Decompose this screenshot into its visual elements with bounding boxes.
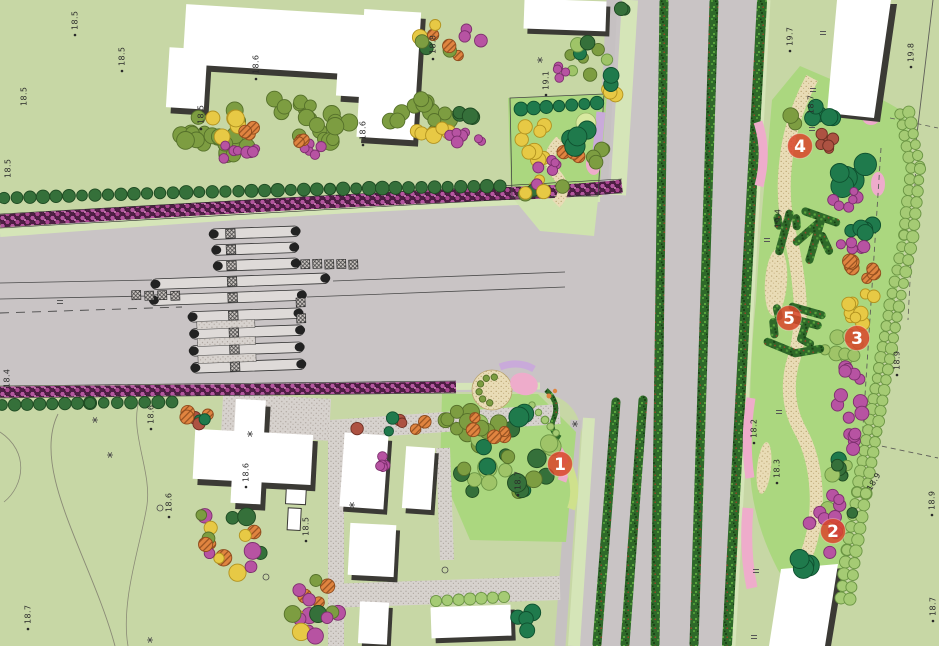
toll-booth	[226, 245, 236, 254]
tree	[846, 582, 857, 593]
elevation-value: 18.6	[165, 493, 174, 512]
tree	[518, 120, 532, 134]
toll-booth	[337, 259, 346, 268]
tree	[854, 153, 876, 175]
tree	[206, 111, 220, 125]
building-top-center	[523, 0, 610, 37]
tree	[834, 389, 847, 402]
tree	[284, 606, 301, 623]
tree	[453, 594, 464, 605]
tree	[553, 65, 561, 73]
tree	[590, 96, 603, 109]
tree	[166, 396, 178, 408]
tree	[141, 188, 152, 199]
tree	[34, 398, 46, 410]
tree	[830, 164, 849, 183]
tree	[220, 186, 231, 197]
tree	[873, 415, 885, 427]
tree	[226, 511, 239, 524]
marker-number: 3	[851, 329, 863, 349]
tree	[285, 184, 296, 195]
elevation-value: 18.6	[359, 121, 368, 140]
tree	[867, 263, 879, 275]
elevation-value: 19.4	[774, 209, 783, 228]
elevation-value: 18.3	[773, 459, 782, 478]
tree	[836, 240, 845, 249]
toll-booth	[171, 291, 180, 300]
tree	[428, 181, 441, 194]
tree	[375, 181, 389, 195]
tree	[21, 398, 33, 410]
tree	[238, 508, 256, 526]
tree	[534, 125, 546, 137]
toll-booth	[132, 290, 141, 299]
purple-hedge-south	[0, 387, 456, 392]
tree	[603, 68, 619, 84]
toll-booth	[226, 229, 236, 238]
tree	[858, 241, 870, 253]
tree	[384, 427, 393, 436]
tree	[553, 100, 564, 111]
tree	[839, 365, 851, 377]
tree	[866, 457, 877, 468]
tree	[877, 395, 888, 406]
tree	[221, 141, 230, 150]
tree	[89, 189, 101, 201]
elevation-value: 18.8	[429, 35, 438, 54]
tree	[527, 101, 541, 115]
tree	[115, 188, 127, 200]
tree	[823, 140, 834, 151]
spot-elevation-dot	[932, 620, 935, 623]
tree	[326, 118, 343, 135]
tree	[519, 187, 531, 199]
elevation-value: 19.7	[786, 27, 795, 46]
tree	[239, 125, 252, 138]
tree	[553, 430, 560, 437]
tree	[911, 140, 921, 150]
tree	[24, 191, 36, 203]
tree	[487, 430, 501, 444]
elevation-value: 18.9	[893, 351, 902, 370]
tree	[914, 163, 925, 174]
tree	[59, 397, 71, 409]
tree	[846, 237, 856, 247]
elevation-label: 18.7	[807, 95, 816, 114]
tree	[515, 133, 528, 146]
spot-elevation-dot	[27, 628, 30, 631]
tree	[98, 398, 109, 409]
elevation-value: 18.5	[118, 47, 127, 66]
site-marker-2[interactable]: 2	[821, 519, 846, 544]
tree	[601, 54, 612, 65]
tree	[834, 494, 844, 504]
tree	[868, 290, 881, 303]
tree	[844, 593, 856, 605]
tree	[482, 475, 497, 490]
tree	[125, 396, 138, 409]
tree	[498, 591, 509, 602]
site-plan-canvas: 怀远 18.518.518.518.518.418.718.618.618.61…	[0, 0, 939, 646]
tree	[849, 196, 857, 204]
toll-booth	[230, 345, 240, 354]
toll-booth	[349, 260, 358, 269]
spot-elevation-dot	[545, 94, 548, 97]
tree	[821, 109, 838, 126]
tree	[579, 99, 590, 110]
toll-booth	[229, 328, 239, 337]
tree	[245, 561, 257, 573]
tree	[520, 623, 535, 638]
tree	[872, 427, 882, 437]
elevation-label: 18.5	[20, 87, 29, 106]
tree	[179, 186, 193, 200]
tree	[455, 181, 467, 193]
toll-booth	[227, 277, 237, 286]
tree	[487, 400, 493, 406]
tree	[499, 464, 512, 477]
building-s3	[347, 523, 400, 583]
tree	[416, 182, 428, 194]
elevation-label: 18.5	[4, 159, 13, 178]
tree	[194, 187, 205, 198]
spot-elevation-dot	[168, 516, 171, 519]
tree	[457, 462, 470, 475]
tree	[8, 398, 21, 411]
tree	[525, 471, 542, 488]
tree	[848, 349, 860, 361]
tree	[900, 266, 912, 278]
toll-booth	[313, 259, 322, 268]
tree	[491, 374, 497, 380]
tree	[850, 187, 858, 195]
tree	[112, 397, 124, 409]
tree	[868, 447, 879, 458]
tree	[479, 396, 485, 402]
tree	[244, 543, 261, 560]
tree	[911, 197, 922, 208]
elevation-value: 18.5	[4, 159, 13, 178]
tree	[852, 534, 864, 546]
tree	[912, 186, 923, 197]
tree	[850, 312, 861, 323]
tree	[63, 190, 76, 203]
tree	[233, 146, 242, 155]
tree	[199, 537, 213, 551]
tree	[229, 564, 246, 581]
tree	[875, 405, 886, 416]
tree	[547, 423, 554, 430]
tree	[258, 184, 270, 196]
tree	[248, 146, 259, 157]
tree	[905, 242, 917, 254]
tree	[464, 593, 476, 605]
tree	[239, 529, 251, 541]
tree	[459, 31, 470, 42]
tree	[854, 522, 866, 534]
tree	[167, 187, 179, 199]
tree	[514, 102, 528, 116]
tree	[47, 398, 59, 410]
elevation-value: 18.4	[3, 369, 12, 388]
tree	[389, 181, 402, 194]
tree	[336, 182, 349, 195]
tree	[910, 208, 921, 219]
tree	[583, 68, 596, 81]
tree	[494, 180, 506, 192]
toll-booth	[145, 291, 154, 300]
tree	[219, 154, 229, 164]
tree	[475, 592, 487, 604]
marker-number: 4	[794, 137, 806, 157]
tree	[562, 68, 570, 76]
tree	[451, 136, 463, 148]
building-s5	[431, 604, 516, 643]
tree	[479, 458, 496, 475]
tree	[888, 333, 898, 343]
spot-elevation-dot	[121, 70, 124, 73]
tree	[783, 108, 799, 124]
tree	[843, 254, 857, 268]
tree	[887, 288, 897, 298]
tree	[316, 142, 326, 152]
toll-booth	[325, 260, 334, 269]
spot-elevation-dot	[789, 50, 792, 53]
tree	[535, 409, 542, 416]
tree	[528, 449, 547, 468]
tree	[470, 413, 480, 423]
elevation-value: 18.5	[302, 517, 311, 536]
tree	[480, 180, 493, 193]
tree	[84, 397, 95, 408]
marker-number: 2	[827, 522, 839, 542]
tree	[903, 106, 915, 118]
spot-elevation-dot	[776, 482, 779, 485]
tree	[351, 183, 362, 194]
elevation-value: 18.6	[242, 463, 251, 482]
tree	[293, 584, 306, 597]
tree	[849, 428, 861, 440]
tree	[509, 407, 529, 427]
tree	[843, 412, 854, 423]
spot-elevation-dot	[305, 540, 308, 543]
spot-elevation-dot	[931, 514, 934, 517]
tree	[824, 546, 836, 558]
tree	[390, 113, 405, 128]
tree	[580, 35, 595, 50]
tree	[303, 593, 316, 606]
tree	[568, 127, 587, 146]
toll-booth	[228, 293, 238, 302]
spot-elevation-dot	[200, 128, 203, 131]
tree	[311, 183, 324, 196]
tree	[321, 612, 333, 624]
tree	[77, 190, 88, 201]
tree	[847, 570, 858, 581]
elevation-value: 18.7	[807, 95, 816, 114]
tree	[233, 186, 244, 197]
tree	[476, 389, 482, 395]
tree	[893, 301, 904, 312]
tree	[154, 187, 166, 199]
tree	[0, 400, 7, 411]
spot-elevation-dot	[150, 428, 153, 431]
tree	[180, 410, 194, 424]
tree	[415, 35, 429, 49]
tree	[830, 330, 845, 345]
elevation-value: 18.2	[750, 419, 759, 438]
tree	[847, 442, 860, 455]
marker-number: 5	[783, 309, 795, 329]
tree	[870, 437, 881, 448]
tree	[914, 175, 924, 185]
tree	[477, 381, 483, 387]
tree	[537, 185, 551, 199]
tree	[0, 192, 10, 203]
tree	[483, 375, 489, 381]
elevation-label: 18.4	[3, 369, 12, 388]
tree	[890, 322, 900, 332]
tree	[214, 553, 224, 563]
tree	[403, 182, 415, 194]
tree	[466, 423, 480, 437]
elevation-label: 19.4	[774, 209, 783, 228]
tree	[277, 100, 291, 114]
tree	[908, 219, 919, 230]
tree	[541, 416, 548, 423]
elevation-value: 18.6	[147, 405, 156, 424]
tree	[834, 201, 844, 211]
tree	[907, 231, 919, 243]
tree	[177, 132, 195, 150]
spot-elevation-dot	[245, 486, 248, 489]
tree	[855, 406, 869, 420]
tree	[501, 450, 514, 463]
spot-elevation-dot	[255, 78, 258, 81]
tree	[468, 181, 480, 193]
elevation-value: 19.8	[907, 43, 916, 62]
tree	[199, 414, 210, 425]
tree	[309, 118, 324, 133]
spot-elevation-dot	[896, 374, 899, 377]
tree	[71, 397, 83, 409]
tree	[850, 545, 862, 557]
elevation-value: 18.7	[514, 471, 523, 490]
tree	[475, 34, 488, 47]
tree	[310, 575, 322, 587]
tree	[297, 183, 310, 196]
tree	[522, 145, 536, 159]
tree	[271, 184, 284, 197]
spot-elevation-dot	[362, 144, 365, 147]
elevation-value: 18.7	[24, 605, 33, 624]
elevation-value: 18.5	[71, 11, 80, 30]
tree	[307, 628, 323, 644]
tree	[11, 192, 23, 204]
tree	[540, 101, 553, 114]
spot-elevation-dot	[910, 66, 913, 69]
tree	[899, 278, 909, 288]
spot-elevation-dot	[432, 58, 435, 61]
spot-elevation-dot	[74, 34, 77, 37]
tree	[324, 183, 335, 194]
tree	[589, 155, 603, 169]
toll-booth	[158, 291, 167, 300]
toll-booth	[227, 261, 237, 270]
elevation-value: 18.7	[929, 597, 938, 616]
tree	[905, 117, 917, 129]
tree	[36, 190, 49, 203]
elevation-value: 18.6	[252, 55, 261, 74]
tree	[803, 517, 815, 529]
tree	[245, 184, 258, 197]
tree	[816, 128, 827, 139]
toll-booth	[230, 362, 240, 371]
marker-number: 1	[554, 455, 566, 475]
tree	[442, 181, 453, 192]
elevation-value: 18.5	[197, 105, 206, 124]
tree	[487, 592, 498, 603]
tree	[896, 290, 906, 300]
tree	[102, 189, 113, 200]
tree	[881, 375, 891, 385]
tree	[419, 416, 432, 429]
toll-booth	[296, 298, 305, 307]
tree	[414, 92, 429, 107]
tree	[310, 150, 319, 159]
site-marker-5[interactable]: 5	[777, 306, 802, 331]
tree	[430, 20, 441, 31]
tree	[903, 255, 914, 266]
tree	[908, 129, 918, 139]
building-s2	[402, 446, 440, 515]
building-s4	[358, 601, 393, 646]
tree	[556, 180, 570, 194]
tree	[294, 137, 305, 148]
tree	[443, 39, 456, 52]
tree	[857, 225, 873, 241]
tree	[386, 412, 398, 424]
site-marker-1[interactable]: 1	[548, 452, 573, 477]
landscape-plan-drawing: 怀远 18.518.518.518.518.418.718.618.618.61…	[0, 0, 939, 646]
tree	[551, 159, 559, 167]
tree	[50, 190, 62, 202]
tree	[351, 422, 363, 434]
tree	[878, 384, 890, 396]
tree	[442, 595, 453, 606]
site-marker-3[interactable]: 3	[845, 326, 870, 351]
tree	[566, 99, 578, 111]
spot-elevation-dot	[753, 442, 756, 445]
tree	[430, 595, 441, 606]
tree	[376, 462, 385, 471]
tree	[533, 162, 544, 173]
tree	[913, 150, 923, 160]
tree	[475, 135, 483, 143]
tree	[206, 186, 218, 198]
toll-booth	[301, 260, 310, 269]
tree	[362, 181, 376, 195]
elevation-value: 19.1	[542, 71, 551, 90]
tree	[790, 550, 809, 569]
tree	[849, 558, 860, 569]
elevation-value: 18.5	[20, 87, 29, 106]
tree	[847, 508, 858, 519]
site-marker-4[interactable]: 4	[788, 134, 813, 159]
tree	[858, 499, 870, 511]
toll-booth	[297, 314, 306, 323]
spot-elevation-dot	[517, 494, 520, 497]
